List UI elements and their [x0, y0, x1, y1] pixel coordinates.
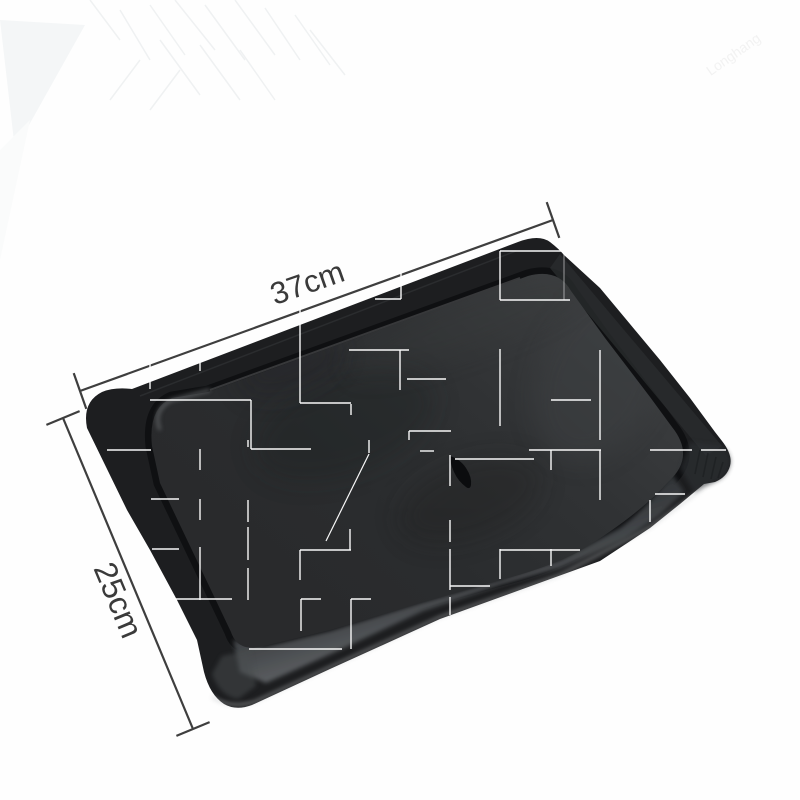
- svg-text:25cm: 25cm: [87, 557, 150, 643]
- svg-text:Longhang: Longhang: [703, 30, 763, 79]
- svg-text:37cm: 37cm: [266, 254, 349, 312]
